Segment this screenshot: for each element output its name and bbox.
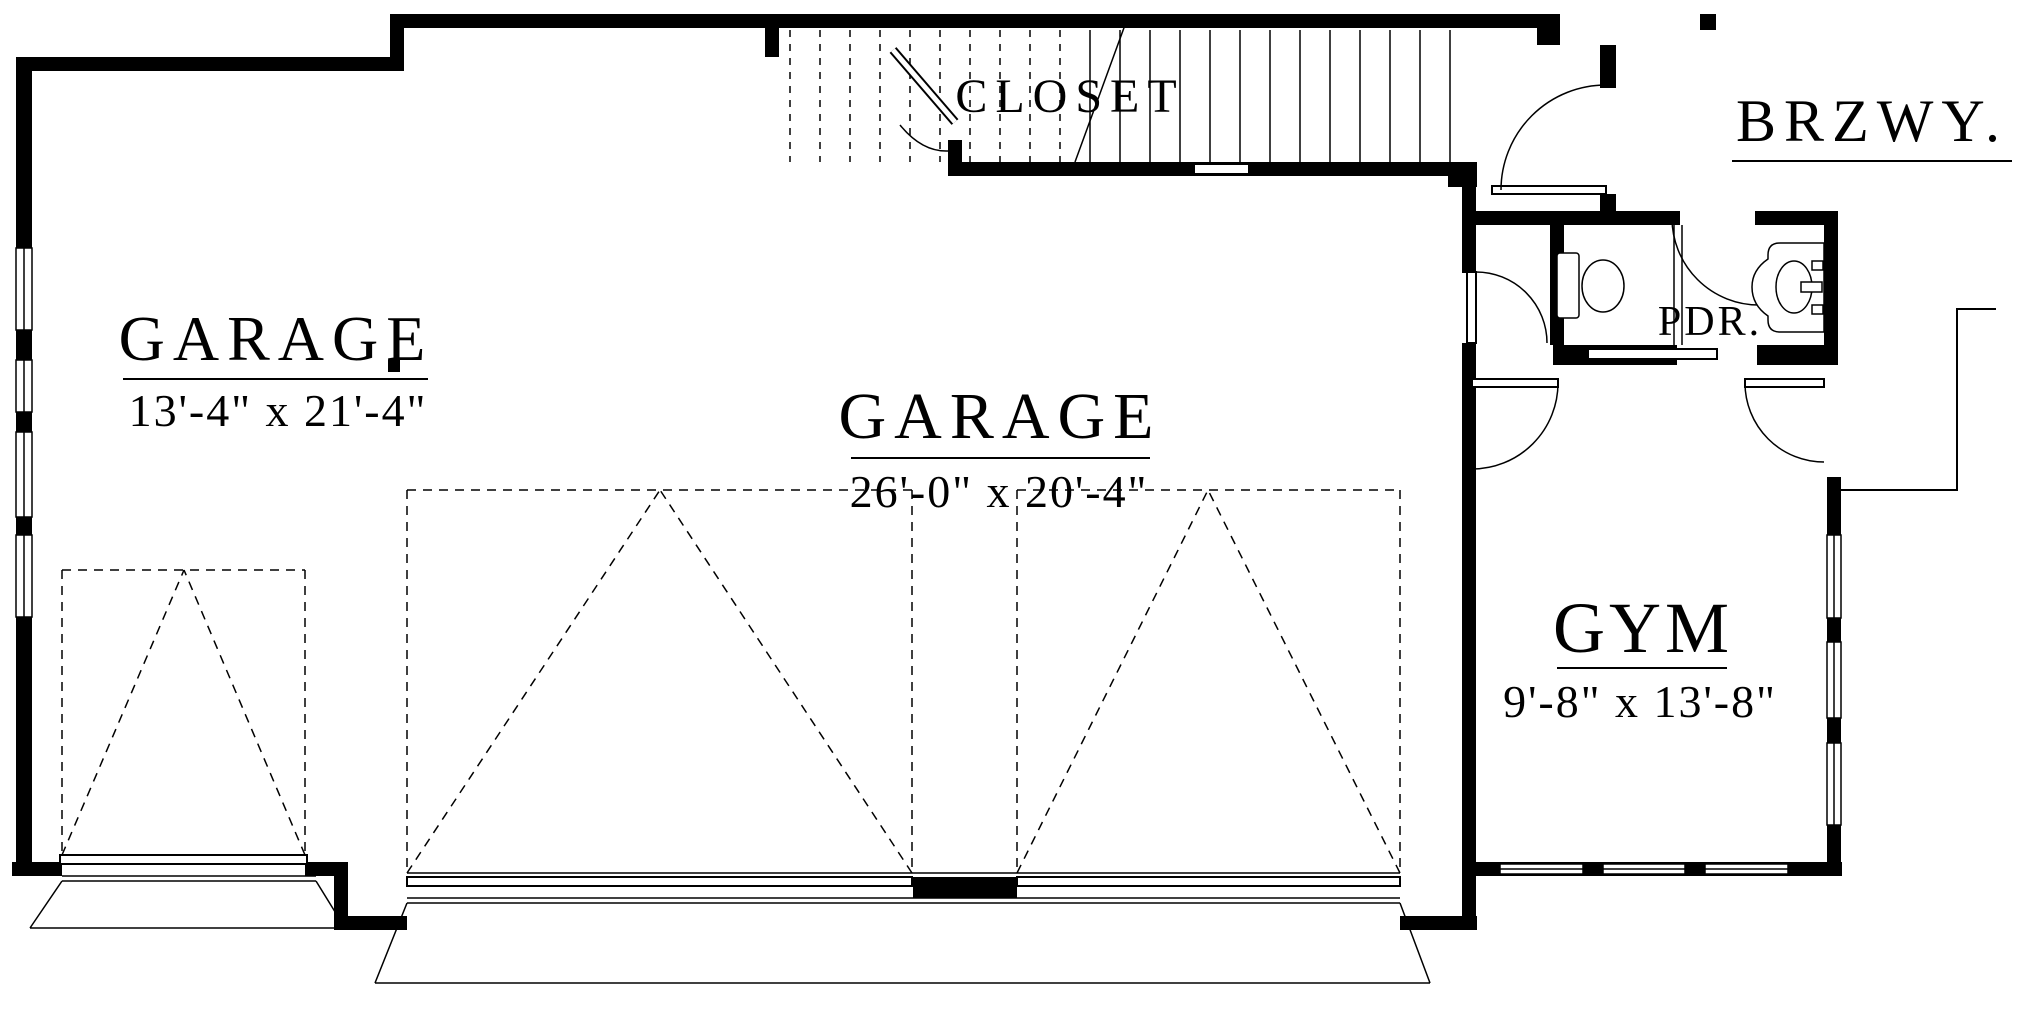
driveway-center: [375, 903, 1430, 983]
garage-main-underline: [851, 457, 1150, 459]
driveway-left: [30, 881, 345, 928]
floor-plan: CLOSET BRZWY. PDR. GARAGE 13'-4" x 21'-4…: [0, 0, 2026, 1016]
closet-label: CLOSET: [955, 73, 1184, 121]
garage-door-panel-left: [60, 855, 307, 864]
door-swing-symbol-right: [1017, 490, 1400, 873]
garage-main-label: GARAGE: [839, 384, 1162, 450]
gym-door-left: [1472, 379, 1558, 469]
breezeway-underline: [1732, 160, 2012, 162]
garage-door-panel-right: [1017, 877, 1400, 886]
hall-door: [1467, 272, 1547, 343]
garage-left-dimensions: 13'-4" x 21'-4": [129, 388, 428, 434]
powder-room-label: PDR.: [1658, 301, 1762, 343]
gym-door-right: [1745, 379, 1824, 462]
gym-label: GYM: [1553, 592, 1733, 664]
garage-left-label: GARAGE: [119, 307, 434, 371]
door-swing-symbol-left: [62, 570, 305, 855]
breezeway-door: [1492, 85, 1606, 194]
stair-wall-notch: [1195, 165, 1248, 173]
garage-door-panel-middle: [407, 877, 912, 886]
garage-doors: [30, 490, 1430, 983]
closet-door: [893, 50, 955, 151]
powder-room-door: [1672, 218, 1759, 305]
toilet-fixture: [1557, 253, 1624, 318]
sink-fixture: [1752, 243, 1824, 332]
breezeway-label: BRZWY.: [1736, 91, 2008, 151]
gym-underline: [1557, 667, 1727, 669]
gym-dimensions: 9'-8" x 13'-8": [1503, 679, 1777, 725]
garage-left-underline: [123, 378, 428, 380]
door-swing-symbol-middle: [407, 490, 912, 873]
breezeway-stoop-outline: [1841, 309, 1996, 490]
garage-main-dimensions: 26'-0" x 20'-4": [850, 469, 1149, 515]
